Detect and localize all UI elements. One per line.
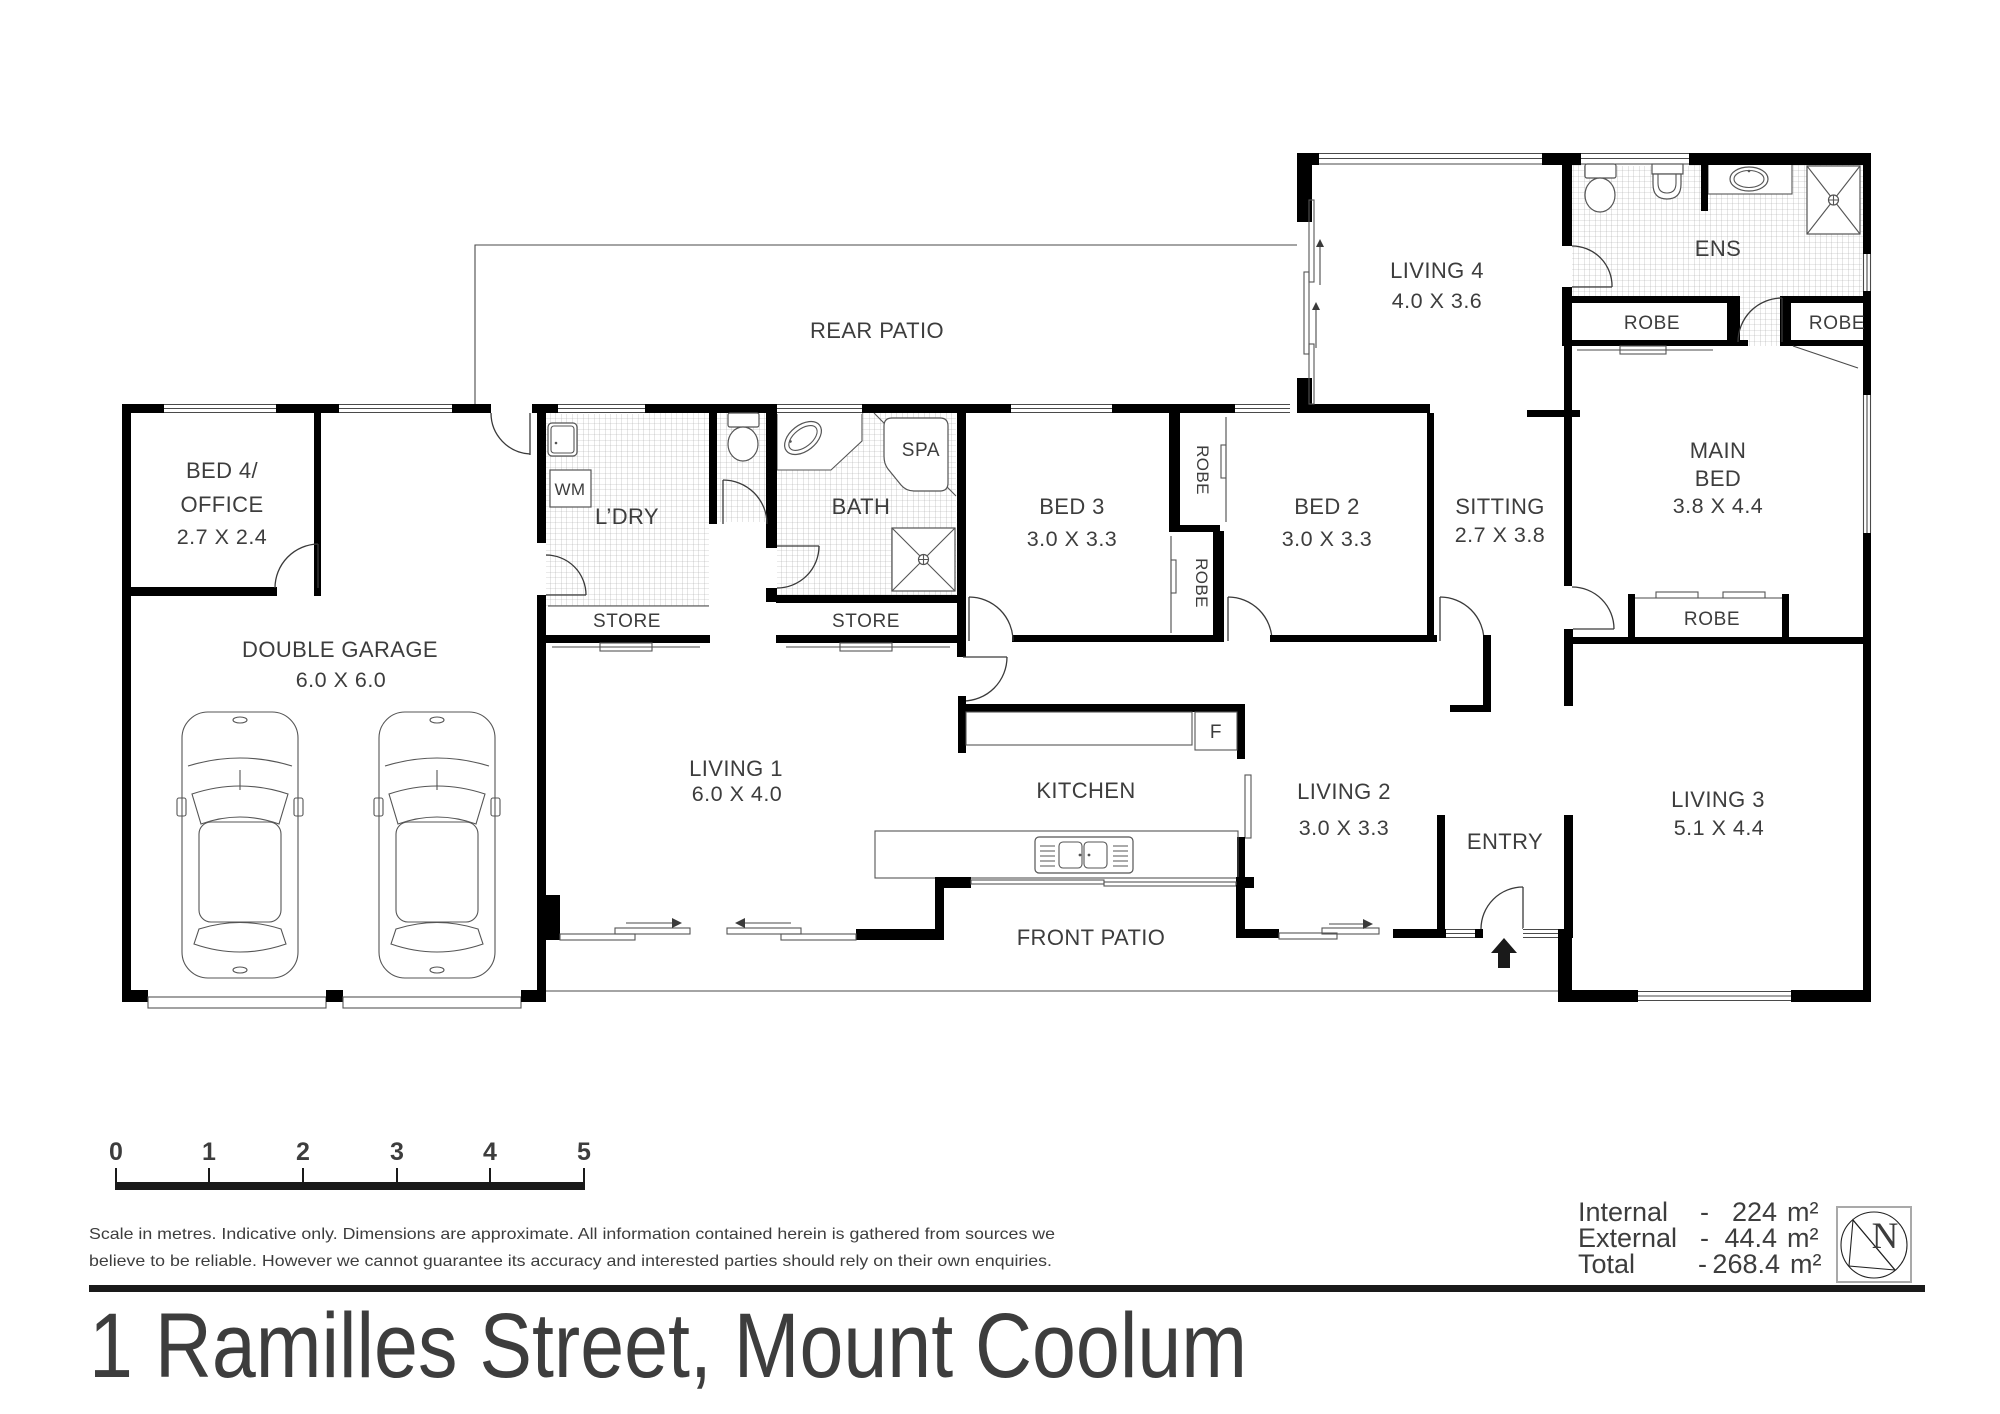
svg-text:STORE: STORE [832,611,900,632]
svg-text:Scale in metres. Indicative on: Scale in metres. Indicative only. Dimens… [89,1226,1055,1243]
svg-text:BED 3: BED 3 [1039,494,1105,519]
svg-text:4.0 X 3.6: 4.0 X 3.6 [1392,289,1483,313]
svg-text:believe to be reliable. Howeve: believe to be reliable. However we canno… [89,1253,1052,1270]
svg-text:2.7 X 2.4: 2.7 X 2.4 [177,525,268,549]
svg-text:LIVING 4: LIVING 4 [1390,258,1484,283]
svg-text:3.8 X 4.4: 3.8 X 4.4 [1673,494,1764,518]
svg-text:OFFICE: OFFICE [180,492,263,517]
svg-text:LIVING 3: LIVING 3 [1671,787,1765,812]
svg-text:WM: WM [554,480,585,499]
svg-text:2.7 X 3.8: 2.7 X 3.8 [1455,523,1546,547]
svg-text:268.4: 268.4 [1712,1249,1780,1279]
svg-text:Total: Total [1578,1249,1635,1279]
svg-text:BED 4/: BED 4/ [186,458,259,483]
svg-text:N: N [1872,1216,1899,1257]
svg-text:BATH: BATH [832,494,891,519]
svg-text:ENTRY: ENTRY [1467,829,1543,854]
svg-text:SITTING: SITTING [1455,494,1545,519]
svg-text:3: 3 [390,1138,404,1166]
svg-text:ROBE: ROBE [1809,313,1865,334]
svg-text:BED 2: BED 2 [1294,494,1360,519]
svg-text:ROBE: ROBE [1684,609,1740,630]
svg-text:KITCHEN: KITCHEN [1036,778,1135,803]
svg-text:DOUBLE GARAGE: DOUBLE GARAGE [242,637,438,662]
svg-text:m²: m² [1790,1249,1821,1279]
svg-text:ENS: ENS [1695,236,1741,261]
svg-text:0: 0 [109,1138,123,1166]
svg-text:1 Ramilles Street, Mount Coolu: 1 Ramilles Street, Mount Coolum [89,1295,1247,1397]
svg-text:ROBE: ROBE [1192,558,1211,608]
svg-text:REAR PATIO: REAR PATIO [810,318,944,343]
svg-text:MAIN: MAIN [1690,438,1747,463]
svg-text:L’DRY: L’DRY [595,504,659,529]
svg-text:ROBE: ROBE [1193,445,1212,495]
svg-text:STORE: STORE [593,611,661,632]
svg-text:SPA: SPA [902,440,940,461]
svg-text:-: - [1698,1249,1707,1279]
svg-text:3.0 X 3.3: 3.0 X 3.3 [1027,527,1118,551]
svg-text:3.0 X 3.3: 3.0 X 3.3 [1282,527,1373,551]
svg-text:5.1 X 4.4: 5.1 X 4.4 [1674,816,1765,840]
svg-text:3.0 X 3.3: 3.0 X 3.3 [1299,816,1390,840]
svg-text:BED: BED [1695,466,1741,491]
svg-text:2: 2 [296,1138,310,1166]
svg-text:F: F [1210,722,1222,743]
svg-text:LIVING 2: LIVING 2 [1297,779,1391,804]
svg-text:6.0 X 6.0: 6.0 X 6.0 [296,668,387,692]
svg-text:ROBE: ROBE [1624,313,1680,334]
svg-text:FRONT PATIO: FRONT PATIO [1017,925,1166,950]
svg-text:6.0 X 4.0: 6.0 X 4.0 [692,782,783,806]
svg-text:4: 4 [483,1138,497,1166]
svg-text:LIVING 1: LIVING 1 [689,756,783,781]
svg-text:5: 5 [577,1138,591,1166]
svg-text:1: 1 [202,1138,216,1166]
